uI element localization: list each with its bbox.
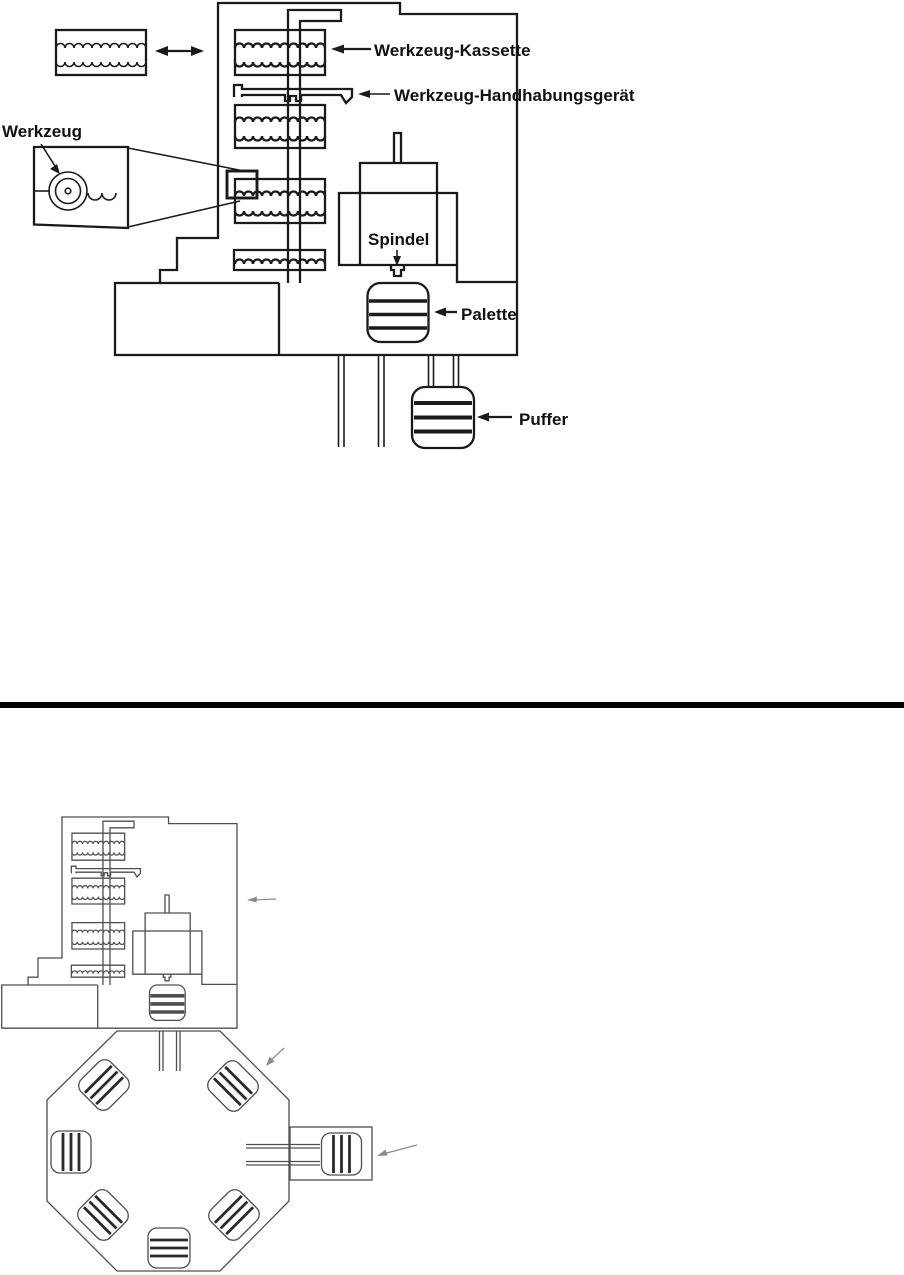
label-puffer: Puffer [519, 410, 569, 429]
label-spindel: Spindel [368, 230, 429, 249]
magnifier-cone-top-line [128, 148, 244, 171]
buffer-pallet-clamp-lines [414, 403, 472, 432]
carousel-arrow-shaft [270, 1048, 284, 1061]
tool-mid-circle [56, 179, 81, 204]
machine-plan-view [2, 817, 237, 1028]
station-arrow-head [377, 1150, 388, 1157]
tool-detail-empty-pockets [88, 193, 116, 200]
label-werkzeug: Werkzeug [2, 122, 82, 141]
section-divider [0, 702, 904, 708]
carousel-pallet-bottom [148, 1228, 190, 1268]
label-palette: Palette [461, 305, 517, 324]
bottom-diagram [2, 817, 417, 1271]
tool-detail-box [34, 147, 128, 228]
handhabungsgeraet-arrow-head [358, 90, 370, 98]
pallet-carousel-octagon [47, 1031, 289, 1271]
station-rails [246, 1145, 320, 1166]
detached-cassette-pocket-row-top [56, 44, 146, 49]
machining-center-figure: Werkzeug Werkzeug-Kassette Werkzeug-Hand… [0, 0, 904, 1275]
kassette-arrow-head [331, 45, 344, 54]
werkzeug-arrow-head [50, 164, 60, 174]
detached-tool-cassette [56, 30, 146, 75]
carousel-pallet-bottom-left [74, 1186, 132, 1244]
label-werkzeug-kassette: Werkzeug-Kassette [374, 41, 531, 60]
detached-cassette-pocket-row-bottom [56, 62, 146, 67]
label-werkzeug-handhabungsgeraet: Werkzeug-Handhabungsgerät [394, 86, 635, 105]
puffer-arrow-head [477, 413, 489, 422]
palette-arrow-head [434, 308, 446, 317]
station-arrow-shaft [383, 1145, 417, 1154]
figure-canvas: Werkzeug Werkzeug-Kassette Werkzeug-Hand… [0, 0, 904, 1275]
carousel-pallet-top-right [204, 1057, 262, 1115]
cassette-exchange-arrow-left-head [155, 46, 168, 56]
plan-machine-arrow-head [247, 897, 257, 903]
top-diagram: Werkzeug Werkzeug-Kassette Werkzeug-Hand… [2, 3, 635, 448]
station-pallet [322, 1133, 362, 1175]
tool-center-dot [65, 188, 71, 194]
cassette-exchange-arrow-right-head [191, 46, 204, 56]
carousel-pallet-left [51, 1131, 91, 1173]
plan-pallet-rails [160, 1031, 181, 1071]
magnifier-cone-bottom-line [128, 201, 240, 227]
